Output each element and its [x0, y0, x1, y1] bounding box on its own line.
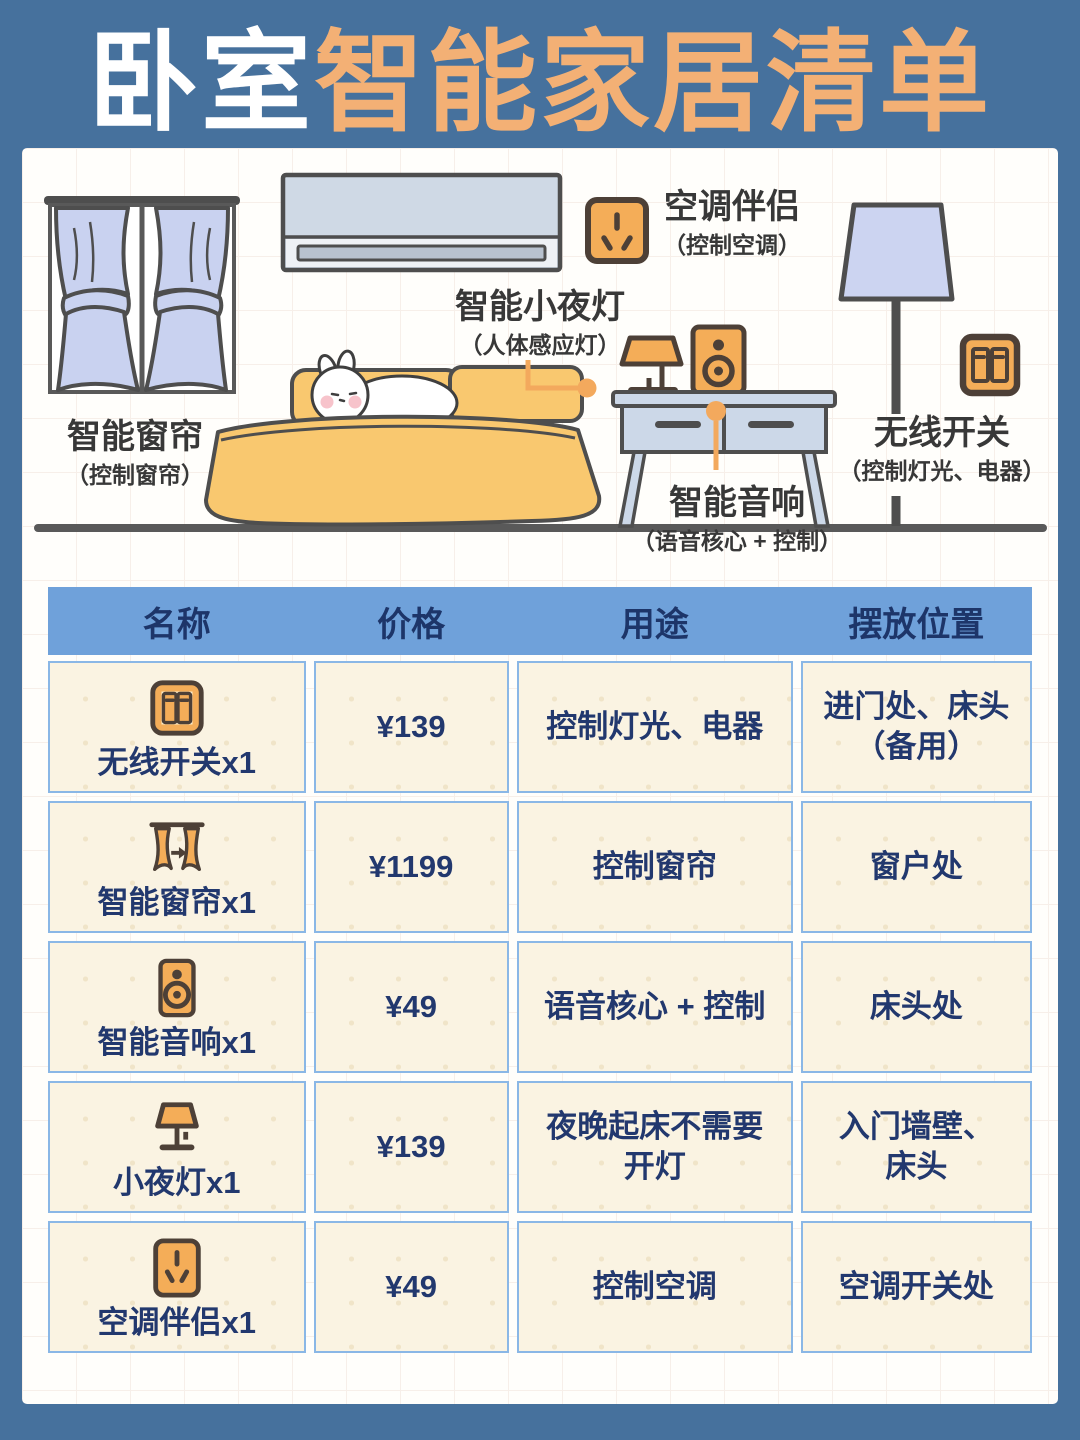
label-ac-companion-sub: （控制空调） — [652, 232, 812, 258]
table-row: 空调伴侣x1 ¥49 控制空调 空调开关处 — [48, 1221, 1032, 1353]
cell-use: 控制窗帘 — [517, 801, 793, 933]
header-price: 价格 — [314, 597, 509, 646]
cell-use: 语音核心 + 控制 — [517, 941, 793, 1073]
air-conditioner-illustration — [283, 175, 560, 270]
cell-price: ¥49 — [314, 1221, 509, 1353]
night-light-icon — [142, 1097, 212, 1159]
header-use: 用途 — [517, 597, 793, 646]
label-smart-speaker: 智能音响 （语音核心 + 控制） — [630, 484, 844, 555]
product-name: 空调伴侣x1 — [98, 1303, 256, 1343]
table-row: 智能音响x1 ¥49 语音核心 + 控制 床头处 — [48, 941, 1032, 1073]
table-row: 智能窗帘x1 ¥1199 控制窗帘 窗户处 — [48, 801, 1032, 933]
label-smart-speaker-sub: （语音核心 + 控制） — [630, 528, 844, 554]
table-header-row: 名称 价格 用途 摆放位置 — [48, 587, 1032, 655]
cell-use: 夜晚起床不需要 开灯 — [517, 1081, 793, 1213]
cell-placement: 窗户处 — [801, 801, 1032, 933]
label-wireless-switch-sub: （控制灯光、电器） — [832, 458, 1052, 484]
page-title: 卧室智能家居清单 — [0, 2, 1080, 144]
cell-placement: 入门墙壁、 床头 — [801, 1081, 1032, 1213]
table-row: 小夜灯x1 ¥139 夜晚起床不需要 开灯 入门墙壁、 床头 — [48, 1081, 1032, 1213]
header-name: 名称 — [48, 597, 306, 646]
label-smart-curtain: 智能窗帘 （控制窗帘） — [40, 418, 230, 489]
cell-name-ac-companion: 空调伴侣x1 — [48, 1221, 306, 1353]
smart-speaker — [693, 327, 744, 393]
wireless-switch-icon — [142, 677, 212, 739]
header-placement: 摆放位置 — [801, 597, 1032, 646]
curtain-icon — [142, 817, 212, 879]
cell-price: ¥139 — [314, 661, 509, 793]
label-night-light-sub: （人体感应灯） — [445, 332, 635, 358]
window-curtains-illustration — [44, 196, 240, 392]
label-ac-companion-main: 空调伴侣 — [652, 188, 812, 227]
label-wireless-switch-main: 无线开关 — [832, 414, 1052, 453]
label-night-light: 智能小夜灯 （人体感应灯） — [445, 288, 635, 359]
cell-use: 控制灯光、电器 — [517, 661, 793, 793]
cell-name-smart-curtain: 智能窗帘x1 — [48, 801, 306, 933]
bedroom-diagram: 智能窗帘 （控制窗帘） 空调伴侣 （控制空调） 智能小夜灯 （人体感应灯） 智能… — [22, 148, 1058, 585]
product-name: 智能窗帘x1 — [98, 883, 256, 923]
cell-placement: 进门处、床头 （备用） — [801, 661, 1032, 793]
label-night-light-main: 智能小夜灯 — [445, 288, 635, 327]
cell-price: ¥1199 — [314, 801, 509, 933]
table-body: 无线开关x1 ¥139 控制灯光、电器 进门处、床头 （备用） 智能窗帘x1 — [48, 661, 1032, 1353]
label-smart-curtain-main: 智能窗帘 — [40, 418, 230, 457]
cell-name-night-light: 小夜灯x1 — [48, 1081, 306, 1213]
title-smart-home-list: 智能家居清单 — [314, 0, 992, 153]
product-name: 无线开关x1 — [98, 743, 256, 783]
title-bedroom: 卧室 — [88, 0, 314, 153]
cell-price: ¥49 — [314, 941, 509, 1073]
cell-placement: 床头处 — [801, 941, 1032, 1073]
label-smart-speaker-main: 智能音响 — [630, 484, 844, 523]
socket-icon — [588, 200, 646, 261]
label-wireless-switch: 无线开关 （控制灯光、电器） — [832, 414, 1052, 485]
bedroom-illustration — [22, 148, 1058, 585]
label-ac-companion: 空调伴侣 （控制空调） — [652, 188, 812, 259]
cell-placement: 空调开关处 — [801, 1221, 1032, 1353]
label-smart-curtain-sub: （控制窗帘） — [40, 462, 230, 488]
wall-switch-icon — [963, 337, 1017, 393]
product-name: 小夜灯x1 — [113, 1163, 240, 1203]
cell-name-wireless-switch: 无线开关x1 — [48, 661, 306, 793]
cell-use: 控制空调 — [517, 1221, 793, 1353]
table-row: 无线开关x1 ¥139 控制灯光、电器 进门处、床头 （备用） — [48, 661, 1032, 793]
ac-companion-icon — [142, 1237, 212, 1299]
product-name: 智能音响x1 — [98, 1023, 256, 1063]
product-table: 名称 价格 用途 摆放位置 无线开关x1 — [48, 587, 1032, 1353]
cell-price: ¥139 — [314, 1081, 509, 1213]
speaker-icon — [142, 957, 212, 1019]
cell-name-smart-speaker: 智能音响x1 — [48, 941, 306, 1073]
bed-illustration — [206, 350, 599, 524]
content-card: 智能窗帘 （控制窗帘） 空调伴侣 （控制空调） 智能小夜灯 （人体感应灯） 智能… — [22, 148, 1058, 1404]
